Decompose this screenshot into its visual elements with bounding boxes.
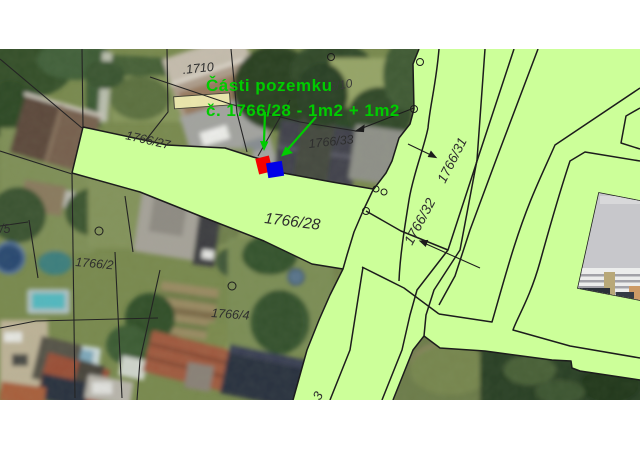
- svg-text:č. 1766/28 - 1m2 + 1m2: č. 1766/28 - 1m2 + 1m2: [206, 101, 400, 120]
- svg-text:Části pozemku: Části pozemku: [206, 76, 332, 95]
- svg-text:1766/4: 1766/4: [211, 306, 250, 323]
- svg-text:/5: /5: [0, 222, 10, 236]
